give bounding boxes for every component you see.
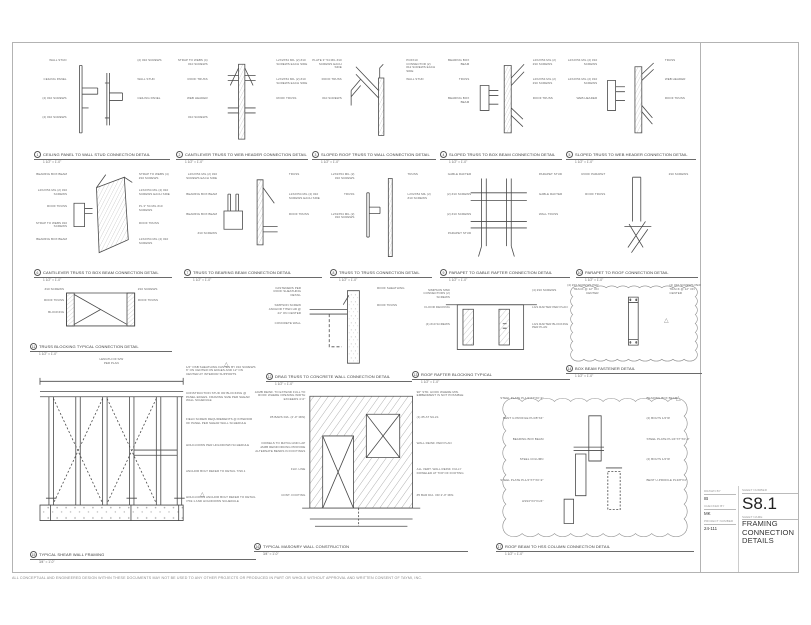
detail-drawing: L2X2X54 MIL (2) #10 SCREWSTRUSSL2X2X54 M… bbox=[566, 56, 696, 151]
detail-title: ROOF RAFTER BLOCKING TYPICAL bbox=[421, 372, 492, 377]
detail-drawing: SIMPSON MSD CONNECTORS (2) SCREWS(4) #10… bbox=[412, 286, 570, 371]
revision-triangle-icon: △ bbox=[664, 318, 669, 324]
detail-number: 2 bbox=[176, 151, 183, 158]
title-block-sheet-info: SHEET NUMBER S8.1 SHEET NAME FRAMING CON… bbox=[739, 486, 798, 572]
annotation-label: ROOF PARAPET bbox=[576, 173, 605, 177]
detail-title: SLOPED ROOF TRUSS TO WALL CONNECTION DET… bbox=[321, 152, 430, 157]
detail-title: SLOPED TRUSS TO BOX BEAM CONNECTION DETA… bbox=[449, 152, 555, 157]
detail-title: CANTILEVER TRUSS TO BOX BEAM CONNECTION … bbox=[43, 270, 159, 275]
annotation-label: TRUSS bbox=[289, 173, 322, 177]
annotation-label: WEB HEADER bbox=[176, 97, 208, 101]
detail-truss-to-bearing-beam: L2X2X54 MIL (2) #10 SCREWS EACH SIDETRUS… bbox=[184, 170, 322, 284]
detail-truss-blocking-typical: #10 SCREWS#10 SCREWSROOF TRUSSROOF TRUSS… bbox=[30, 286, 172, 358]
detail-number: 5 bbox=[566, 151, 573, 158]
detail-cantilever-truss-to-web-header: STRAP TO WEBS (4) #10 SCREWSL2X2X54 MIL … bbox=[176, 56, 308, 166]
annotation-label: L2X2X54 MIL (2) #10 SCREWS bbox=[533, 78, 562, 86]
detail-number: 8 bbox=[330, 269, 337, 276]
sheet-number: S8.1 bbox=[742, 495, 798, 512]
detail-number: 6 bbox=[34, 269, 41, 276]
annotation-label: L2X2X54 MIL (2) #10 SCREWS bbox=[330, 213, 354, 221]
detail-number: 4 bbox=[440, 151, 447, 158]
detail-drawing: WALL STUD(2) #10 SCREWSCEILING PANELWALL… bbox=[34, 56, 170, 151]
annotation-label: ROOF TRUSS bbox=[576, 193, 605, 197]
detail-title: PARAPET TO ROOF CONNECTION DETAIL bbox=[585, 270, 669, 275]
detail-drawing: STEEL PLATE PL1/4"X7"X0'-9"BEARING BOX B… bbox=[496, 392, 694, 543]
annotation-label: STRAP TO WEBS #10 SCREWS bbox=[34, 222, 67, 230]
annotation-label: PL 3" 54 MIL #10 SCREWS bbox=[139, 205, 172, 213]
detail-drawing: #10 SCREWS#10 SCREWSROOF TRUSSROOF TRUSS… bbox=[30, 286, 172, 343]
detail-title: ROOF BEAM TO HSS COLUMN CONNECTION DETAI… bbox=[505, 544, 610, 549]
detail-title: DRAG TRUSS TO CONCRETE WALL CONNECTION D… bbox=[275, 374, 390, 379]
detail-title: PARAPET TO GABLE RAFTER CONNECTION DETAI… bbox=[449, 270, 552, 275]
detail-number: 1 bbox=[34, 151, 41, 158]
drawn-by-value: IB bbox=[704, 496, 736, 501]
detail-scale: 1 1/2" = 1'-0" bbox=[505, 552, 694, 558]
annotation-label: WALL STUD bbox=[137, 78, 170, 82]
revision-triangle-icon: △ bbox=[224, 362, 229, 368]
detail-drawing: BEARING BOX BEAML2X2X54 MIL (2) #10 SCRE… bbox=[440, 56, 562, 151]
annotation-label: BEARING BOX BEAM bbox=[184, 193, 217, 197]
detail-roof-rafter-blocking-typical: SIMPSON MSD CONNECTORS (2) SCREWS(4) #10… bbox=[412, 286, 570, 386]
annotation-label: ROOF TRUSS bbox=[276, 97, 308, 101]
annotation-label: BEARING BOX BEAM bbox=[440, 97, 469, 105]
annotation-label: L2X2X54 MIL (2) #10 SCREWS EACH SIDE bbox=[184, 173, 217, 181]
annotation-label: TRUSS bbox=[330, 193, 354, 197]
detail-sloped-roof-truss-to-wall: PLATE 3" 54 MIL #10 SCREWS EACH SIDEPC6X… bbox=[312, 56, 436, 166]
annotation-label: ROOF TRUSS bbox=[665, 97, 696, 101]
detail-number: 15 bbox=[30, 551, 37, 558]
detail-scale: 1 1/2" = 1'-0" bbox=[449, 160, 562, 166]
checked-by-label: CHECKED BY bbox=[704, 504, 736, 510]
detail-drawing: STRAP TO WEBS (4) #10 SCREWSL2X2X54 MIL … bbox=[176, 56, 308, 151]
detail-drawing: BEARING BOX BEAMSTRAP TO WEBS (4) #10 SC… bbox=[34, 170, 172, 269]
detail-drawing: PLATE 3" 54 MIL #10 SCREWS EACH SIDEPC6X… bbox=[312, 56, 436, 151]
annotation-label: L2X2X54 MIL (2) #10 SCREWS bbox=[566, 59, 597, 67]
annotation-label: CONSTRUCTION STUD OR BLOCKING @ PANEL ED… bbox=[186, 392, 256, 403]
detail-number: 12 bbox=[266, 373, 273, 380]
detail-box-beam-fastener: (4) #10 SCREWS PER TRACK @ 12" ON CENTER… bbox=[566, 282, 702, 380]
detail-scale: 1 1/2" = 1'-0" bbox=[575, 160, 696, 166]
detail-title: SLOPED TRUSS TO WEB HEADER CONNECTION DE… bbox=[575, 152, 688, 157]
annotation-label: ROOF TRUSS bbox=[34, 205, 67, 209]
detail-ceiling-panel-to-wall-stud: WALL STUD(2) #10 SCREWSCEILING PANELWALL… bbox=[34, 56, 170, 166]
annotation-label: TRUSS bbox=[440, 78, 469, 82]
detail-sloped-truss-to-web-header: L2X2X54 MIL (2) #10 SCREWSTRUSSL2X2X54 M… bbox=[566, 56, 696, 166]
detail-drawing: GABLE RAFTERPARAPET STUD(2) #10 SCREWSGA… bbox=[440, 170, 570, 269]
annotation-label: ROOF TRUSS bbox=[312, 78, 342, 82]
detail-title: TYPICAL SHEAR WALL FRAMING bbox=[39, 552, 104, 557]
detail-drawing: ROOF PARAPET#10 SCREWSROOF TRUSS bbox=[576, 170, 698, 269]
detail-scale: 1 1/2" = 1'-0" bbox=[43, 160, 170, 166]
annotation-label: FASTENERS PER ROOF SHEATHING DETAIL bbox=[266, 287, 301, 298]
disclaimer-text: ALL CONCEPTUAL AND ENGINEERED DESIGN WIT… bbox=[12, 576, 792, 580]
detail-number: 9 bbox=[440, 269, 447, 276]
detail-number: 11 bbox=[30, 343, 37, 350]
detail-parapet-to-gable-rafter: GABLE RAFTERPARAPET STUD(2) #10 SCREWSGA… bbox=[440, 170, 570, 284]
detail-title: TYPICAL MASONRY WALL CONSTRUCTION bbox=[263, 544, 349, 549]
annotation-label: CEILING PANEL bbox=[137, 97, 170, 101]
drawn-by-label: DRAWN BY bbox=[704, 489, 736, 495]
annotation-label: CONCRETE WALL bbox=[266, 322, 301, 326]
annotation-label: WEB HEADER bbox=[665, 78, 696, 82]
annotation-label: HOLD-DOWN ANCHOR BOLT REFER TO DETAIL 7/… bbox=[186, 496, 256, 504]
annotation-label: ROOF TRUSS bbox=[289, 213, 322, 217]
project-number-label: PROJECT NUMBER bbox=[704, 519, 736, 525]
annotation-label: #10 SCREWS bbox=[312, 97, 342, 101]
detail-roof-beam-to-hss-column: STEEL PLATE PL1/4"X7"X0'-9"BEARING BOX B… bbox=[496, 392, 694, 558]
detail-number: 17 bbox=[496, 543, 503, 550]
detail-scale: 1 1/2" = 1'-0" bbox=[185, 160, 308, 166]
annotation-label: (2) #10 SCREWS bbox=[34, 97, 67, 101]
detail-title: BOX BEAM FASTENER DETAIL bbox=[575, 366, 635, 371]
sheet-name: FRAMING CONNECTION DETAILS bbox=[742, 520, 798, 546]
annotation-label: TRUSS bbox=[665, 59, 696, 63]
detail-number: 13 bbox=[412, 371, 419, 378]
annotation-label: L2X2X54 MIL (2) #10 SCREWS bbox=[408, 193, 432, 201]
detail-number: 7 bbox=[184, 269, 191, 276]
detail-sloped-truss-to-box-beam: BEARING BOX BEAML2X2X54 MIL (2) #10 SCRE… bbox=[440, 56, 562, 166]
detail-typical-shear-wall-framing: LENGTH OF S/WPER PLAN 1/2" OSB SHEATHING… bbox=[30, 360, 256, 566]
annotation-label: BEARING BOX BEAM bbox=[184, 213, 217, 217]
detail-scale: 1 1/2" = 1'-0" bbox=[43, 278, 172, 284]
drawing-sheet: WALL STUD(2) #10 SCREWSCEILING PANELWALL… bbox=[0, 0, 811, 625]
annotation-label: STRAP TO WEBS (4) #10 SCREWS bbox=[139, 173, 172, 181]
detail-scale: 1 1/2" = 1'-0" bbox=[321, 160, 436, 166]
detail-scale: 1 1/2" = 1'-0" bbox=[575, 374, 702, 380]
checked-by-value: MK bbox=[704, 511, 736, 516]
title-block-fields: DRAWN BYIB CHECKED BYMK PROJECT NUMBER24… bbox=[701, 486, 739, 572]
revision-triangle-icon: △ bbox=[200, 492, 205, 498]
annotation-label: L2X2X54 MIL (2) #10 SCREWS EACH SIDE bbox=[139, 189, 172, 197]
annotation-label: L2X2X54 MIL (2) #10 SCREWS bbox=[330, 173, 354, 181]
detail-parapet-to-roof: ROOF PARAPET#10 SCREWSROOF TRUSS 10PARAP… bbox=[576, 170, 698, 284]
annotation-label: #10 SCREWS bbox=[176, 116, 208, 120]
detail-scale: 3/4" = 1'-0" bbox=[39, 560, 256, 566]
detail-title: TRUSS BLOCKING TYPICAL CONNECTION DETAIL bbox=[39, 344, 139, 349]
revision-triangle-icon: △ bbox=[676, 396, 681, 402]
annotation-label: L2X2X54 MIL (2) #10 SCREWS EACH SIDE bbox=[276, 59, 308, 67]
detail-drawing: (4) #10 SCREWS PER TRACK @ 12" ON CENTER… bbox=[566, 282, 702, 365]
annotation-label: PC6X10 CONNECTOR (2) #12 SCREWS EACH SID… bbox=[406, 59, 436, 74]
annotation-label: TRUSS bbox=[408, 173, 432, 177]
annotation-label: ROOF SHEATHING bbox=[377, 287, 412, 291]
annotation-label: WALL STUD bbox=[406, 78, 436, 82]
project-number-value: 24-111 bbox=[704, 526, 736, 531]
annotation-label: L2X2X54 MIL (2) #10 SCREWS EACH SIDE bbox=[276, 78, 308, 86]
annotation-label: L2X2X54 MIL (2) #10 SCREWS EACH SIDE bbox=[289, 193, 322, 201]
detail-number: 10 bbox=[576, 269, 583, 276]
detail-title: CEILING PANEL TO WALL STUD CONNECTION DE… bbox=[43, 152, 150, 157]
detail-drawing: FASTENERS PER ROOF SHEATHING DETAILROOF … bbox=[266, 284, 412, 373]
detail-scale: 1 1/2" = 1'-0" bbox=[449, 278, 570, 284]
detail-drag-truss-to-concrete-wall: FASTENERS PER ROOF SHEATHING DETAILROOF … bbox=[266, 284, 412, 388]
annotation-label: HOLD-DOWN PER HOLDDOWN SCHEDULE bbox=[186, 444, 256, 448]
detail-scale: 3/4" = 1'-0" bbox=[263, 552, 468, 558]
annotation-label: ROOF TRUSS bbox=[377, 304, 412, 308]
annotation-label: #10 SCREWS bbox=[184, 232, 217, 236]
detail-title: CANTILEVER TRUSS TO WEB HEADER CONNECTIO… bbox=[185, 152, 307, 157]
detail-typical-masonry-wall-construction: JAMB REINF. TO EXTEND FULL TO ROOF WHERE… bbox=[254, 386, 468, 558]
annotation-label: (2) #10 SCREWS bbox=[137, 59, 170, 63]
annotation-label: ROOF TRUSS bbox=[176, 78, 208, 82]
detail-number: 14 bbox=[566, 365, 573, 372]
annotation-label: SIMPSON SCREW ANCHOR TITEN HD @ 24" ON C… bbox=[266, 304, 301, 315]
annotation-label: (2) #10 SCREWS bbox=[34, 116, 67, 120]
annotation-label: BEARING BOX BEAM bbox=[440, 59, 469, 67]
annotation-label: PLATE 3" 54 MIL #10 SCREWS EACH SIDE bbox=[312, 59, 342, 70]
detail-number: 16 bbox=[254, 543, 261, 550]
detail-number: 3 bbox=[312, 151, 319, 158]
annotation-label: CEILING PANEL bbox=[34, 78, 67, 82]
dimension-label: LENGTH OF S/WPER PLAN bbox=[48, 358, 175, 365]
annotation-label: #10 SCREWS bbox=[669, 173, 698, 177]
annotation-label: L2X2X54 MIL (2) #10 SCREWS bbox=[34, 189, 67, 197]
annotation-label: L2X2X54 MIL (2) #10 SCREWS bbox=[566, 78, 597, 86]
annotation-label: WEB HEADER bbox=[566, 97, 597, 101]
annotation-label: ANCHOR BOLT REFER TO DETAIL 7/S9.1 bbox=[186, 470, 256, 474]
detail-cantilever-truss-to-box-beam: BEARING BOX BEAMSTRAP TO WEBS (4) #10 SC… bbox=[34, 170, 172, 284]
annotation-label: ROOF TRUSS bbox=[139, 222, 172, 226]
annotation-label: ROOF TRUSS bbox=[533, 97, 562, 101]
detail-truss-to-truss: L2X2X54 MIL (2) #10 SCREWSTRUSSTRUSSL2X2… bbox=[330, 170, 432, 284]
detail-drawing: L2X2X54 MIL (2) #10 SCREWS EACH SIDETRUS… bbox=[184, 170, 322, 269]
annotation-label: BEARING BOX BEAM bbox=[34, 238, 67, 242]
annotation-label: WALL STUD bbox=[34, 59, 67, 63]
detail-drawing: L2X2X54 MIL (2) #10 SCREWSTRUSSTRUSSL2X2… bbox=[330, 170, 432, 269]
annotation-label: 1/2" OSB SHEATHING FASTEN BY #10 SCREWS … bbox=[186, 366, 256, 377]
detail-drawing: LENGTH OF S/WPER PLAN 1/2" OSB SHEATHING… bbox=[30, 360, 256, 551]
annotation-label: STRAP TO WEBS (4) #10 SCREWS bbox=[176, 59, 208, 67]
title-block: DRAWN BYIB CHECKED BYMK PROJECT NUMBER24… bbox=[701, 486, 798, 572]
annotation-label: BEARING BOX BEAM bbox=[34, 173, 67, 177]
detail-title: TRUSS TO TRUSS CONNECTION DETAIL bbox=[339, 270, 420, 275]
detail-drawing: JAMB REINF. TO EXTEND FULL TO ROOF WHERE… bbox=[254, 386, 468, 543]
annotation-label: L2X2X54 MIL (2) #10 SCREWS bbox=[533, 59, 562, 67]
annotation-label: L2X2X54 MIL (2) #10 SCREWS bbox=[139, 238, 172, 246]
detail-title: TRUSS TO BEARING BEAM CONNECTION DETAIL bbox=[193, 270, 291, 275]
sheet-number-label: SHEET NUMBER bbox=[742, 488, 798, 494]
annotation-label: FIELD SCREW REQUIREMENTS @ INTERIOR OF P… bbox=[186, 418, 256, 426]
